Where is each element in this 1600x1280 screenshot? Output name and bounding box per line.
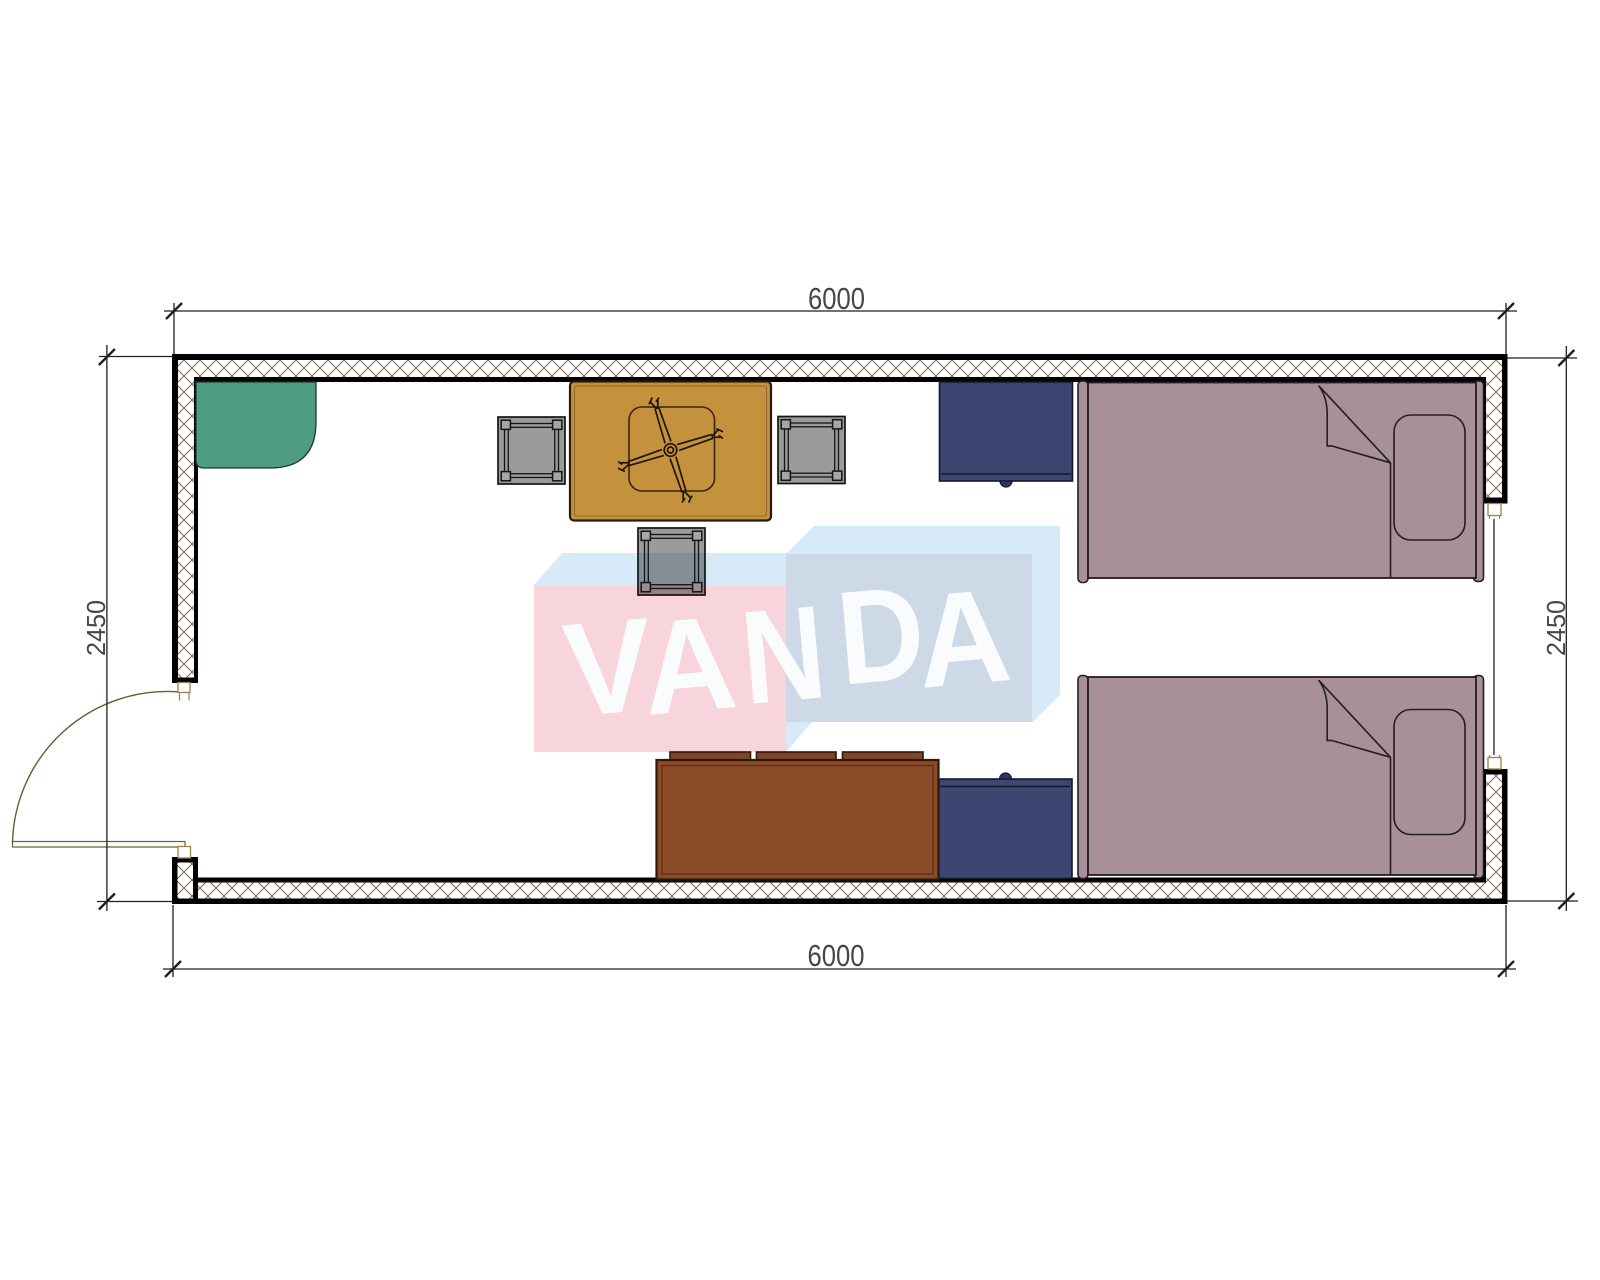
svg-text:N: N <box>736 578 832 733</box>
svg-text:A: A <box>911 561 1017 717</box>
svg-text:6000: 6000 <box>808 939 865 973</box>
svg-text:2450: 2450 <box>1541 600 1571 656</box>
svg-text:A: A <box>636 588 742 744</box>
svg-text:2450: 2450 <box>81 600 111 656</box>
svg-text:6000: 6000 <box>808 282 865 316</box>
